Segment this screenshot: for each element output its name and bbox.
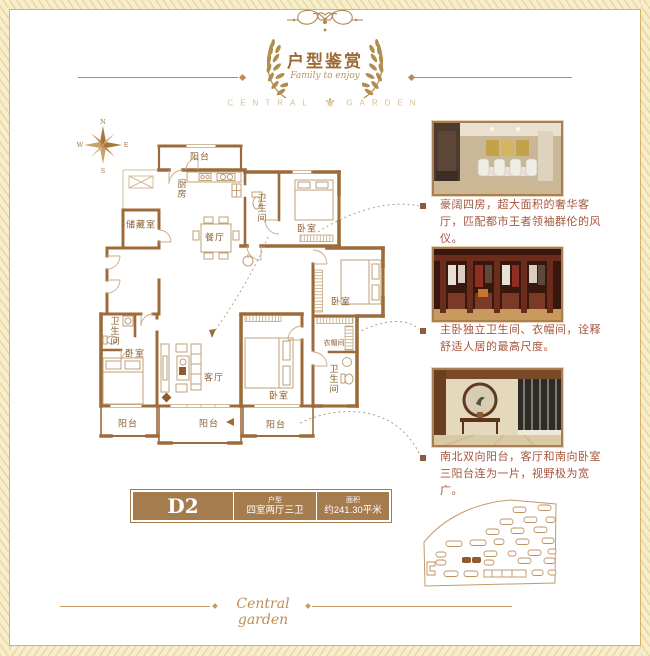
caption-bullet — [420, 203, 426, 209]
footer-rule-left — [60, 606, 210, 607]
unit-area-label: 面积 — [346, 496, 360, 505]
room-label-balcony-s: 阳台 — [199, 417, 219, 430]
brand-lettering: CENTRAL ⚜ GARDEN — [0, 94, 650, 112]
photo-caption-2: 主卧独立卫生间、衣帽间，诠释舒适人居的最高尺度。 — [440, 322, 610, 356]
photo-caption-3: 南北双向阳台，客厅和南向卧室三阳台连为一片，视野极为宽广。 — [440, 449, 610, 500]
scroll-ornament-icon — [287, 3, 363, 42]
header-rule-right — [412, 77, 572, 78]
brand-word-left: CENTRAL — [227, 98, 313, 107]
compass-n: N — [100, 118, 106, 126]
highlighted-building — [462, 557, 481, 563]
room-label-bedroom-master: 卧室 — [269, 389, 289, 402]
footer-brand-script: Central garden — [218, 596, 308, 628]
diamond-ornament — [408, 74, 415, 81]
photo-caption-1: 豪阔四房，超大面积的奢华客厅，匹配都市王者领袖群伦的风仪。 — [440, 197, 610, 248]
compass-w: W — [77, 141, 84, 149]
caption-bullet — [420, 328, 426, 334]
room-label-bath-south: 卫生间 — [328, 364, 341, 394]
room-label-storage: 储藏室 — [126, 218, 156, 231]
floorplan: 阳台 厨房 卫生间 卧室 储藏室 餐厅 卧室 卫生间 卧室 客厅 衣帽间 卫生间… — [95, 140, 415, 460]
brand-word-right: GARDEN — [346, 98, 422, 107]
header-rule-left — [78, 77, 238, 78]
unit-info-table: D2 户型 四室两厅三卫 面积 约241.30平米 — [130, 489, 392, 523]
unit-type-label: 户型 — [268, 496, 282, 505]
unit-model: D2 — [133, 492, 233, 520]
unit-area-value: 约241.30平米 — [324, 505, 382, 517]
room-label-bath-north: 卫生间 — [256, 193, 269, 223]
brochure-page: 户型鉴赏 Family to enjoy CENTRAL ⚜ GARDEN N … — [0, 0, 650, 656]
footer-rule-right — [312, 606, 512, 607]
room-label-balcony-top: 阳台 — [190, 150, 210, 163]
footer-dot — [212, 603, 218, 609]
photo-balcony-hall — [432, 368, 563, 447]
unit-type-value: 四室两厅三卫 — [246, 505, 303, 517]
page-title: 户型鉴赏 — [258, 47, 392, 72]
room-label-kitchen: 厨房 — [176, 179, 189, 199]
border-band-bottom — [0, 646, 650, 656]
room-label-balcony-se: 阳台 — [266, 418, 286, 431]
site-plan — [418, 496, 566, 593]
room-label-bedroom-north: 卧室 — [297, 222, 317, 235]
room-label-balcony-sw: 阳台 — [118, 417, 138, 430]
photo-walk-in-closet — [432, 247, 563, 322]
room-label-dining: 餐厅 — [205, 231, 225, 244]
diamond-ornament — [239, 74, 246, 81]
photo-living-dining — [432, 121, 563, 196]
room-label-bedroom-west: 卧室 — [125, 347, 145, 360]
room-label-bedroom-east: 卧室 — [331, 295, 351, 308]
title-wreath: 户型鉴赏 Family to enjoy — [258, 38, 392, 100]
caption-bullet — [420, 455, 426, 461]
page-subtitle: Family to enjoy — [258, 71, 392, 81]
room-label-living: 客厅 — [204, 371, 224, 384]
fleur-de-lis-icon: ⚜ — [324, 95, 336, 110]
room-label-cloakroom: 衣帽间 — [324, 338, 345, 348]
room-label-bath-west: 卫生间 — [109, 316, 122, 346]
floorplan-drawing — [95, 140, 415, 460]
